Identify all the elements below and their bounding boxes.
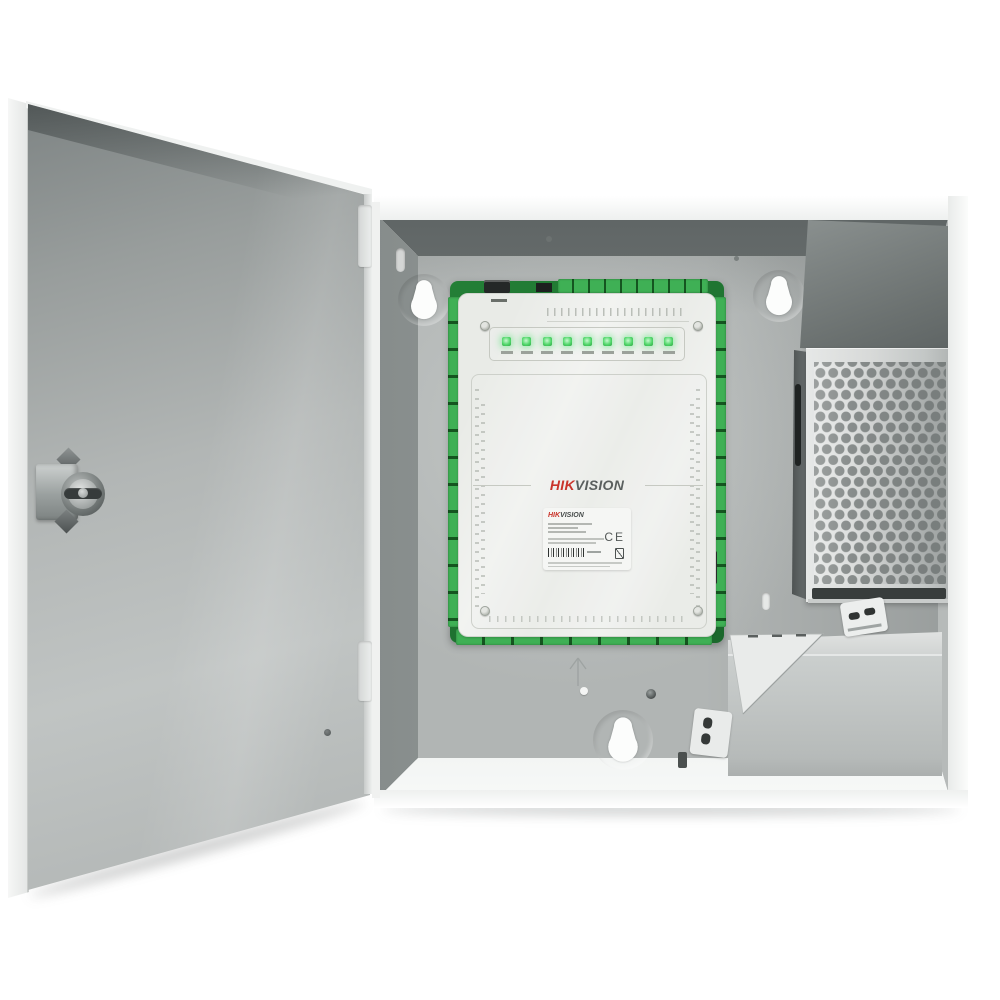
psu-side-slot (795, 384, 801, 466)
label-text-line (548, 562, 622, 564)
cabinet-left-flange (372, 202, 380, 798)
label-text-line (548, 531, 586, 533)
mounting-keyhole-bottom (593, 710, 653, 770)
ce-mark: CE (604, 530, 625, 544)
terminal-labels-top (547, 308, 687, 316)
terminal-labels-bottom (489, 616, 689, 622)
led-label (663, 351, 675, 354)
terminal-labels-right (690, 404, 694, 594)
logo-hik-text: HIK (550, 477, 575, 493)
door-outer-edge (8, 98, 29, 898)
cover-main-panel (471, 374, 707, 629)
status-led (543, 337, 552, 346)
cabinet-top-flange (374, 196, 966, 220)
cabinet-bottom-flange (374, 790, 968, 808)
label-logo-hik: HIK (548, 512, 560, 519)
product-photo: HIKVISION HIKVISION CE (0, 0, 1000, 1000)
mounting-keyhole-top-left (398, 274, 450, 326)
label-text-line (548, 527, 578, 529)
label-logo: HIKVISION (548, 512, 584, 519)
enclosure-door (8, 95, 374, 901)
led-label (521, 351, 533, 354)
label-text-line (548, 523, 592, 525)
mounting-keyhole-top-right (753, 270, 805, 322)
door-right-edge (364, 194, 372, 794)
clip-slot (848, 612, 860, 621)
mounting-clip-upper (840, 597, 889, 637)
status-led (664, 337, 673, 346)
psu-vent-shading (814, 362, 946, 584)
status-led (644, 337, 653, 346)
status-led (624, 337, 633, 346)
power-supply-unit (806, 348, 954, 602)
panel-pill-slot (762, 592, 770, 610)
terminal-labels-left (481, 404, 485, 594)
led-label (561, 351, 573, 354)
lock-center-pin (78, 488, 88, 498)
door-lock (8, 95, 9, 96)
cover-screw (693, 321, 703, 331)
board-cover: HIKVISION HIKVISION CE (458, 293, 716, 637)
cover-screw (480, 321, 490, 331)
label-code-text (587, 551, 601, 553)
status-led (563, 337, 572, 346)
clip-slot (864, 607, 876, 616)
status-led (583, 337, 592, 346)
logo-flank-line (645, 485, 703, 486)
status-led (522, 337, 531, 346)
led-label (582, 351, 594, 354)
panel-screw (646, 689, 656, 699)
clip-slot (701, 733, 711, 745)
status-led (502, 337, 511, 346)
switch-label-text (491, 299, 507, 302)
terminal-labels-right (696, 389, 700, 609)
label-logo-vision: VISION (560, 512, 584, 519)
left-wall-slot (396, 248, 405, 272)
status-led (603, 337, 612, 346)
label-text-line (548, 542, 596, 544)
barcode (548, 548, 584, 557)
door-hinge-bottom (358, 641, 372, 701)
terminal-labels-left (475, 389, 479, 609)
connector (536, 283, 552, 292)
mounting-clip-lower (689, 708, 732, 758)
door-hole (324, 729, 331, 736)
clip-slot (703, 717, 713, 729)
cable-cover-plate (800, 216, 948, 354)
dip-switch (484, 280, 510, 293)
led-label (501, 351, 513, 354)
label-text-line (548, 566, 610, 568)
led-label (602, 351, 614, 354)
logo-flank-line (473, 485, 531, 486)
panel-slot (678, 752, 687, 768)
panel-hole (734, 256, 739, 261)
terminal-block-top (558, 279, 708, 293)
led-label (541, 351, 553, 354)
label-text-line (548, 538, 604, 540)
cabinet-right-flange (948, 196, 968, 796)
panel-hole (546, 236, 552, 242)
led-strip (489, 327, 685, 361)
corner-gusset-bracket (728, 632, 826, 718)
enclosure-cabinet: HIKVISION HIKVISION CE (372, 192, 972, 814)
embossed-arrow (564, 650, 592, 690)
logo-vision-text: VISION (575, 477, 624, 493)
door-hinge-top (358, 205, 372, 267)
led-label (642, 351, 654, 354)
clip-base-line (848, 623, 882, 631)
label-bracket-line (547, 321, 689, 322)
product-label: HIKVISION CE (543, 508, 631, 570)
led-label (622, 351, 634, 354)
weee-bin-icon (615, 548, 624, 559)
controller-board: HIKVISION HIKVISION CE (450, 281, 724, 643)
